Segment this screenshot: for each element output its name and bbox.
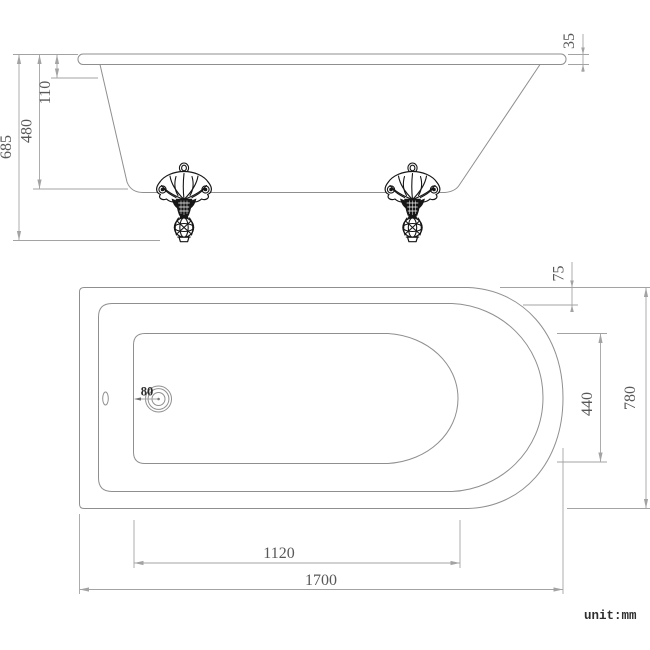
dim-rim-thickness: 35 [561, 33, 589, 72]
clawfoot-left [157, 163, 212, 242]
dim-overall-length: 1700 [80, 448, 564, 594]
unit-note: unit:mm [584, 609, 637, 623]
dim-interior-length: 1120 [134, 520, 460, 568]
bathtub-technical-drawing: 685 480 110 35 [0, 0, 650, 650]
dim-overall-height: 685 [0, 55, 160, 241]
plan-basin-outline [134, 334, 459, 464]
dim-rim-width-label: 75 [551, 266, 568, 282]
plan-view: 80 75 440 780 1120 [80, 262, 650, 594]
dim-tub-depth-label: 480 [19, 119, 36, 143]
side-view: 685 480 110 35 [0, 33, 589, 242]
clawfoot-right [385, 163, 440, 242]
dim-interior-width: 440 [557, 334, 607, 463]
dim-interior-length-label: 1120 [263, 545, 294, 562]
dim-overall-width-label: 780 [622, 386, 639, 410]
dim-overall-height-label: 685 [0, 135, 15, 159]
side-rim-profile [78, 54, 566, 65]
bathtub-technical-drawing-page: 685 480 110 35 [0, 0, 650, 650]
dim-rim-width: 75 [500, 262, 650, 312]
dim-overall-length-label: 1700 [305, 572, 337, 589]
dim-rim-to-shoulder: 110 [37, 55, 98, 105]
dim-tub-depth: 480 [19, 55, 129, 190]
dim-interior-width-label: 440 [579, 392, 596, 416]
dim-rim-thickness-label: 35 [561, 33, 578, 49]
dim-rim-to-shoulder-label: 110 [37, 81, 54, 104]
side-bowl-profile [100, 65, 540, 193]
dim-drain-diameter-label: 80 [141, 385, 154, 399]
overflow-hole [103, 392, 109, 405]
